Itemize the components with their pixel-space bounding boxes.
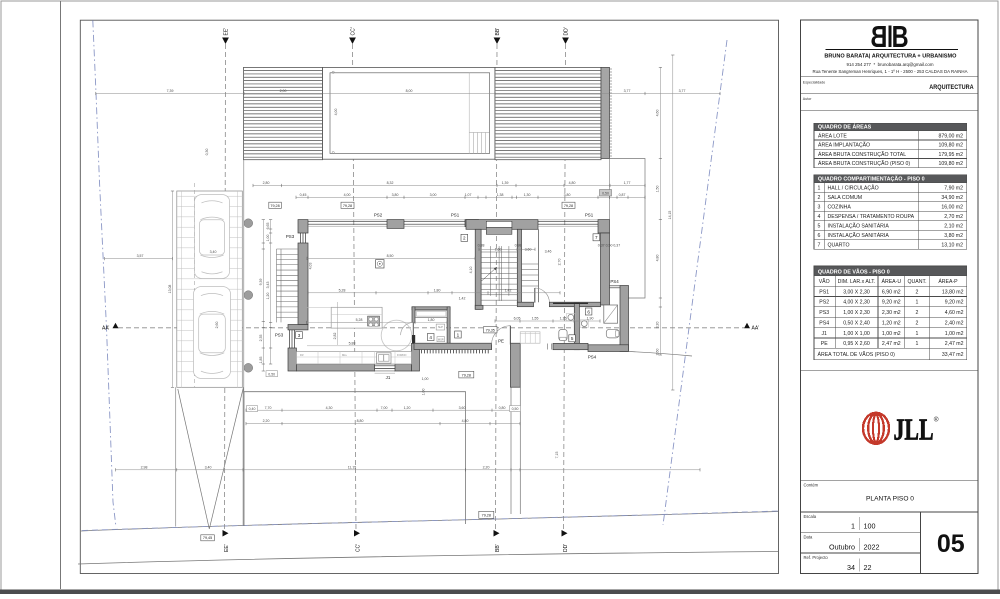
svg-text:2,35: 2,35: [259, 335, 263, 342]
svg-text:DD': DD': [564, 27, 570, 35]
svg-text:2: 2: [916, 320, 919, 326]
svg-text:1,60: 1,60: [495, 247, 502, 251]
svg-text:1,15: 1,15: [560, 317, 567, 321]
svg-text:4,30: 4,30: [326, 406, 333, 410]
svg-text:4,03: 4,03: [309, 263, 313, 270]
svg-text:2,70: 2,70: [558, 259, 562, 266]
svg-text:3,46: 3,46: [545, 249, 552, 253]
svg-text:1: 1: [851, 522, 855, 531]
svg-text:5,28: 5,28: [356, 318, 363, 322]
svg-text:0,50: 0,50: [512, 407, 519, 411]
svg-text:79,28: 79,28: [482, 514, 491, 518]
svg-text:PS2: PS2: [374, 213, 383, 218]
svg-text:4,60: 4,60: [656, 110, 660, 117]
svg-text:79,28: 79,28: [564, 204, 573, 208]
svg-text:1: 1: [916, 331, 919, 337]
svg-text:3,77: 3,77: [624, 89, 631, 93]
svg-text:3: 3: [298, 333, 301, 338]
svg-text:1,20 m2: 1,20 m2: [882, 320, 901, 326]
svg-text:1,80: 1,80: [428, 318, 435, 322]
svg-text:7: 7: [818, 242, 821, 248]
svg-text:3,60: 3,60: [459, 406, 466, 410]
svg-text:VÃO: VÃO: [819, 278, 830, 285]
svg-text:1,00: 1,00: [422, 389, 426, 396]
svg-text:ÁREA IMPLANTAÇÃO: ÁREA IMPLANTAÇÃO: [818, 142, 870, 149]
svg-text:6,65: 6,65: [266, 223, 270, 230]
svg-text:7,39: 7,39: [167, 89, 174, 93]
svg-text:5,88: 5,88: [349, 341, 356, 345]
svg-text:EE': EE': [224, 544, 230, 552]
svg-text:4,10: 4,10: [469, 267, 473, 274]
svg-text:7,90 m2: 7,90 m2: [944, 185, 963, 191]
svg-text:0,50 X 2,40: 0,50 X 2,40: [843, 320, 870, 326]
svg-text:34: 34: [847, 563, 855, 572]
svg-text:Ref. Projecto: Ref. Projecto: [804, 555, 829, 560]
svg-text:Escala: Escala: [804, 514, 817, 519]
svg-text:PLANTA PISO 0: PLANTA PISO 0: [866, 496, 914, 503]
svg-text:1: 1: [916, 341, 919, 347]
svg-text:CC': CC': [355, 544, 361, 552]
svg-text:1,90: 1,90: [587, 317, 594, 321]
svg-text:2,00: 2,00: [280, 89, 287, 93]
svg-text:5: 5: [571, 336, 574, 341]
svg-text:14,15: 14,15: [668, 211, 672, 220]
svg-text:2: 2: [916, 310, 919, 316]
svg-text:2022: 2022: [864, 542, 880, 551]
svg-text:DESPENSA / TRATAMENTO ROUPA: DESPENSA / TRATAMENTO ROUPA: [828, 214, 915, 220]
svg-text:11,15: 11,15: [348, 465, 357, 469]
svg-text:MSR: MSR: [438, 337, 444, 341]
svg-text:0,98: 0,98: [515, 243, 522, 247]
svg-text:13,10 m2: 13,10 m2: [941, 242, 963, 248]
svg-text:2,47 m2: 2,47 m2: [945, 341, 964, 347]
svg-text:CC': CC': [351, 27, 357, 35]
svg-text:2: 2: [916, 289, 919, 295]
svg-text:9,39: 9,39: [259, 279, 263, 286]
svg-text:INSTALAÇÃO SANITÁRIA: INSTALAÇÃO SANITÁRIA: [828, 232, 890, 239]
svg-text:MLL: MLL: [342, 353, 348, 357]
svg-text:1,80: 1,80: [434, 288, 441, 292]
svg-text:Outubro: Outubro: [829, 542, 855, 551]
svg-text:0,37 0,50 0,37: 0,37 0,50 0,37: [598, 244, 620, 248]
svg-text:6: 6: [587, 309, 590, 314]
svg-text:3,57: 3,57: [137, 254, 144, 258]
svg-text:BB': BB': [495, 544, 501, 552]
svg-text:79,28: 79,28: [343, 204, 352, 208]
svg-text:109,80 m2: 109,80 m2: [938, 143, 963, 149]
svg-text:2,70 m2: 2,70 m2: [944, 214, 963, 220]
svg-text:5: 5: [818, 223, 821, 229]
svg-text:179,95 m2: 179,95 m2: [938, 152, 963, 158]
svg-text:4: 4: [818, 214, 821, 220]
svg-text:3,80: 3,80: [392, 193, 399, 197]
svg-text:4,00: 4,00: [334, 109, 338, 116]
svg-text:3,60: 3,60: [525, 248, 532, 252]
svg-text:4,00 X 2,30: 4,00 X 2,30: [843, 300, 870, 306]
svg-text:3,80: 3,80: [564, 193, 571, 197]
svg-text:Data: Data: [804, 535, 814, 540]
svg-text:®: ®: [934, 416, 939, 424]
svg-text:QUADRO DE VÃOS - PISO 0: QUADRO DE VÃOS - PISO 0: [818, 269, 890, 276]
svg-text:3,00 X 2,30: 3,00 X 2,30: [843, 289, 870, 295]
svg-text:PS3: PS3: [286, 234, 295, 239]
svg-text:J1: J1: [386, 375, 391, 380]
svg-text:2: 2: [463, 236, 466, 241]
svg-text:AA’: AA’: [752, 326, 759, 332]
svg-text:3,20: 3,20: [656, 322, 660, 329]
svg-text:1,20: 1,20: [404, 406, 411, 410]
svg-text:4: 4: [429, 335, 432, 340]
svg-text:1,50: 1,50: [656, 186, 660, 193]
svg-text:HALL / CIRCULAÇÃO: HALL / CIRCULAÇÃO: [828, 184, 879, 191]
svg-text:79,28: 79,28: [270, 204, 279, 208]
svg-text:JLL: JLL: [894, 411, 934, 446]
svg-text:914 254 277 * brunobarata.ar: 914 254 277 * brunobarata.arq@gmail.com: [847, 62, 934, 67]
svg-text:7: 7: [595, 235, 598, 240]
svg-text:2: 2: [818, 195, 821, 201]
svg-text:0,45: 0,45: [300, 193, 307, 197]
svg-text:3,80 m2: 3,80 m2: [944, 233, 963, 239]
svg-text:1,00 X 1,00: 1,00 X 1,00: [843, 331, 870, 337]
svg-text:ÁREA LOTE: ÁREA LOTE: [818, 133, 847, 140]
svg-text:PS4: PS4: [588, 355, 597, 360]
svg-text:PE: PE: [498, 339, 504, 344]
svg-text:4,80: 4,80: [462, 419, 469, 423]
svg-text:6,90 m2: 6,90 m2: [882, 289, 901, 295]
svg-text:2,82: 2,82: [333, 333, 337, 340]
svg-text:QUANT.: QUANT.: [907, 279, 926, 285]
svg-text:ARQUITECTURA: ARQUITECTURA: [929, 84, 973, 91]
svg-text:ÁREA-U: ÁREA-U: [881, 278, 901, 285]
svg-text:2,20: 2,20: [263, 419, 270, 423]
svg-text:109,80 m2: 109,80 m2: [938, 161, 963, 167]
svg-text:QUADRO COMPARTIMENTAÇÃO - PISO: QUADRO COMPARTIMENTAÇÃO - PISO 0: [818, 175, 925, 182]
svg-text:2,10 m2: 2,10 m2: [944, 223, 963, 229]
svg-text:8,80: 8,80: [357, 419, 364, 423]
svg-text:13,08: 13,08: [168, 285, 172, 294]
svg-text:1,00: 1,00: [422, 377, 429, 381]
svg-text:1,77: 1,77: [624, 181, 631, 185]
svg-text:Rua Tenente Sangreman Henrique: Rua Tenente Sangreman Henriques, 1 - 1º …: [813, 69, 969, 75]
svg-text:2,30 m2: 2,30 m2: [882, 310, 901, 316]
svg-text:1,00 X 2,30: 1,00 X 2,30: [843, 310, 870, 316]
svg-text:1: 1: [457, 332, 460, 337]
svg-text:PS1: PS1: [819, 289, 829, 295]
svg-text:PS1: PS1: [585, 213, 594, 218]
svg-text:2,47 m2: 2,47 m2: [882, 341, 901, 347]
svg-text:1,30: 1,30: [524, 193, 531, 197]
svg-text:PS1: PS1: [451, 213, 460, 218]
svg-text:0,40: 0,40: [249, 407, 256, 411]
svg-text:879,00 m2: 879,00 m2: [938, 134, 963, 140]
svg-text:2,98: 2,98: [141, 465, 148, 469]
svg-text:PS3: PS3: [819, 310, 829, 316]
svg-text:3: 3: [818, 204, 821, 210]
svg-text:3,40: 3,40: [205, 465, 212, 469]
svg-text:1,00: 1,00: [266, 235, 270, 242]
svg-text:100: 100: [864, 522, 876, 531]
svg-text:1,42: 1,42: [505, 288, 512, 292]
svg-text:ÁREA TOTAL DE VÃOS (PISO 0): ÁREA TOTAL DE VÃOS (PISO 0): [818, 351, 896, 358]
svg-text:2,20: 2,20: [483, 465, 490, 469]
svg-text:0,87: 0,87: [619, 193, 626, 197]
svg-text:4,80: 4,80: [656, 255, 660, 262]
svg-text:EE': EE': [224, 28, 230, 36]
svg-text:9,20 m2: 9,20 m2: [945, 300, 964, 306]
svg-text:3,40: 3,40: [210, 250, 217, 254]
svg-text:3,00: 3,00: [430, 193, 437, 197]
svg-text:PS4: PS4: [819, 320, 829, 326]
svg-text:6: 6: [818, 233, 821, 239]
svg-text:2,80: 2,80: [263, 181, 270, 185]
svg-text:PS4: PS4: [610, 279, 619, 284]
svg-text:PE: PE: [821, 341, 828, 347]
svg-text:2,60: 2,60: [656, 349, 660, 356]
svg-text:1: 1: [818, 185, 821, 191]
svg-text:1,20: 1,20: [266, 293, 270, 300]
svg-text:16,00 m2: 16,00 m2: [941, 204, 963, 210]
svg-text:Contém: Contém: [804, 483, 819, 488]
svg-text:DIM. LAR.x ALT.: DIM. LAR.x ALT.: [838, 279, 876, 285]
svg-text:22: 22: [864, 563, 872, 572]
svg-text:1,07: 1,07: [465, 193, 472, 197]
svg-text:ÁREA BRUTA CONSTRUÇÃO (PISO 0): ÁREA BRUTA CONSTRUÇÃO (PISO 0): [818, 160, 910, 167]
svg-text:4,60 m2: 4,60 m2: [945, 310, 964, 316]
svg-text:Autor: Autor: [803, 96, 812, 101]
svg-text:9,20 m2: 9,20 m2: [882, 300, 901, 306]
svg-text:1,42: 1,42: [459, 297, 466, 301]
svg-text:AA’: AA’: [102, 326, 109, 332]
svg-text:SLP: SLP: [438, 325, 443, 329]
svg-text:1,00 m2: 1,00 m2: [945, 331, 964, 337]
svg-text:PS2: PS2: [819, 300, 829, 306]
svg-text:0,95 X 2,60: 0,95 X 2,60: [843, 341, 870, 347]
svg-text:05: 05: [937, 530, 965, 558]
svg-text:BRUNO BARATA| ARQUITECTURA + U: BRUNO BARATA| ARQUITECTURA + URBANISMO: [824, 53, 957, 59]
svg-text:2,40 m2: 2,40 m2: [945, 320, 964, 326]
svg-text:J1: J1: [821, 331, 827, 337]
svg-text:0,30: 0,30: [205, 149, 209, 156]
svg-text:13,80 m2: 13,80 m2: [942, 289, 964, 295]
svg-text:1,39: 1,39: [502, 181, 509, 185]
svg-text:7,15: 7,15: [555, 452, 559, 459]
svg-text:SALA COMUM: SALA COMUM: [828, 195, 863, 201]
svg-text:7,00: 7,00: [381, 406, 388, 410]
svg-text:FR: FR: [300, 353, 304, 357]
svg-text:QUARTO: QUARTO: [828, 242, 850, 248]
svg-text:0,50: 0,50: [602, 192, 609, 196]
svg-text:Especialidade: Especialidade: [803, 79, 826, 84]
svg-text:79,28: 79,28: [462, 373, 471, 377]
svg-text:79,45: 79,45: [203, 536, 212, 540]
svg-text:INSTALAÇÃO SANITÁRIA: INSTALAÇÃO SANITÁRIA: [828, 222, 890, 229]
svg-text:3,77: 3,77: [679, 89, 686, 93]
svg-text:COZINHA: COZINHA: [828, 204, 852, 210]
svg-text:BB': BB': [495, 28, 501, 36]
svg-text:0,50: 0,50: [268, 372, 275, 376]
svg-text:3,43: 3,43: [266, 282, 270, 289]
svg-text:5,28: 5,28: [339, 288, 346, 292]
svg-text:DD': DD': [563, 544, 569, 552]
svg-text:QUADRO DE ÁREAS: QUADRO DE ÁREAS: [818, 124, 872, 131]
svg-text:0,88: 0,88: [478, 243, 485, 247]
svg-text:1,55: 1,55: [532, 317, 539, 321]
svg-text:ÁREA-P: ÁREA-P: [938, 278, 958, 285]
svg-text:ÁREA BRUTA CONSTRUÇÃO TOTAL: ÁREA BRUTA CONSTRUÇÃO TOTAL: [818, 151, 906, 158]
svg-text:4,00: 4,00: [344, 193, 351, 197]
svg-text:PS3: PS3: [275, 333, 284, 338]
svg-text:33,47 m2: 33,47 m2: [942, 352, 964, 358]
svg-text:0,80: 0,80: [499, 406, 506, 410]
svg-text:4,80: 4,80: [569, 181, 576, 185]
svg-text:79,35: 79,35: [486, 328, 495, 332]
svg-text:8,00: 8,00: [406, 89, 413, 93]
svg-text:1,00 m2: 1,00 m2: [882, 331, 901, 337]
svg-text:8,32: 8,32: [387, 181, 394, 185]
svg-text:1: 1: [916, 300, 919, 306]
svg-text:6,05: 6,05: [514, 317, 521, 321]
svg-text:7,70: 7,70: [265, 406, 272, 410]
svg-text:1,85: 1,85: [259, 357, 263, 364]
svg-text:2,60: 2,60: [215, 322, 219, 329]
svg-text:8,50: 8,50: [387, 254, 394, 258]
svg-text:34,90 m2: 34,90 m2: [941, 195, 963, 201]
svg-text:1,38: 1,38: [497, 193, 504, 197]
svg-text:FORNO: FORNO: [397, 353, 406, 357]
